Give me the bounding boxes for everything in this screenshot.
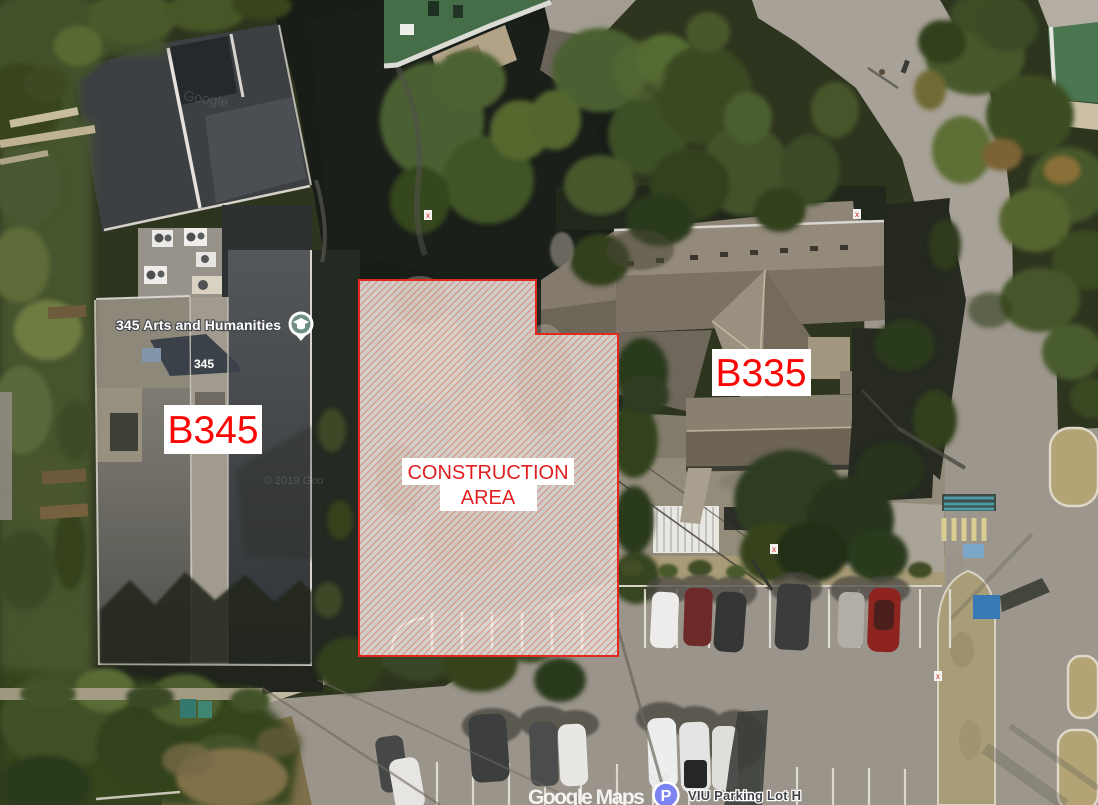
svg-text:B345: B345 xyxy=(167,409,258,452)
svg-text:VIU Parking Lot H: VIU Parking Lot H xyxy=(688,788,801,803)
svg-text:x: x xyxy=(772,545,776,554)
svg-text:x: x xyxy=(855,210,859,219)
svg-text:AREA: AREA xyxy=(461,487,516,509)
svg-text:x: x xyxy=(936,672,940,681)
svg-text:© 2019 Google: © 2019 Google xyxy=(588,770,669,784)
svg-text:CONSTRUCTION: CONSTRUCTION xyxy=(407,462,568,484)
svg-text:x: x xyxy=(426,211,430,220)
svg-text:© 2019 Goo: © 2019 Goo xyxy=(264,475,323,487)
svg-text:P: P xyxy=(661,788,672,805)
svg-text:345: 345 xyxy=(194,357,214,371)
svg-text:Google Maps: Google Maps xyxy=(528,786,644,805)
svg-text:345 Arts and Humanities: 345 Arts and Humanities xyxy=(116,317,281,333)
svg-text:B335: B335 xyxy=(715,352,806,395)
